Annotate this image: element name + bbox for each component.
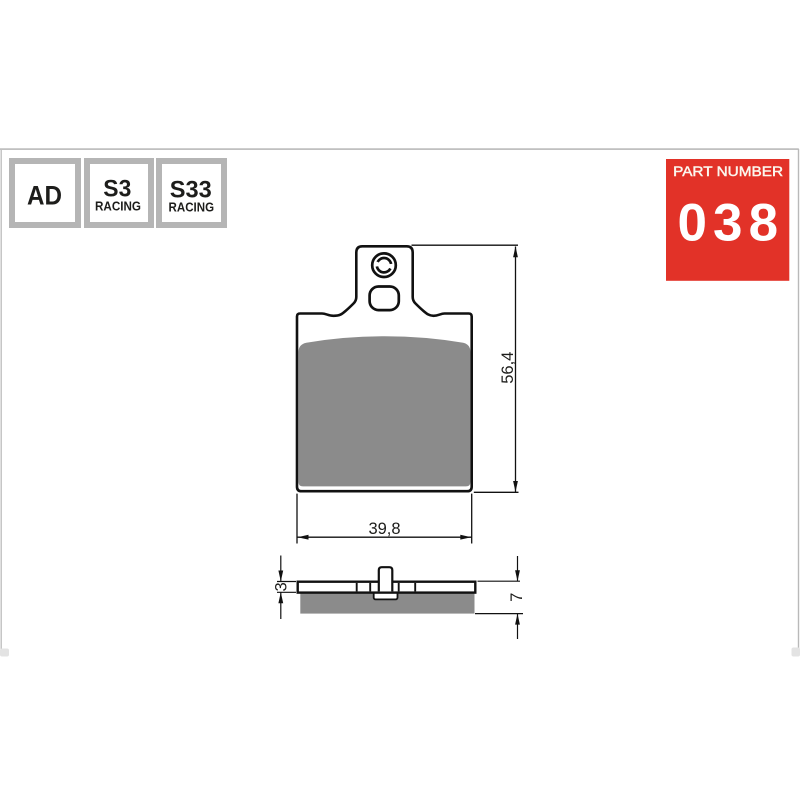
svg-text:AD: AD (27, 181, 62, 211)
svg-text:RACING: RACING (169, 200, 215, 214)
svg-text:038: 038 (678, 193, 779, 252)
svg-text:PART NUMBER: PART NUMBER (673, 164, 783, 179)
svg-text:S3: S3 (103, 176, 131, 203)
svg-text:56,4: 56,4 (499, 352, 517, 384)
svg-text:7: 7 (508, 593, 526, 602)
svg-text:39,8: 39,8 (368, 520, 400, 538)
svg-text:RACING: RACING (95, 200, 141, 214)
svg-text:3: 3 (273, 582, 291, 591)
